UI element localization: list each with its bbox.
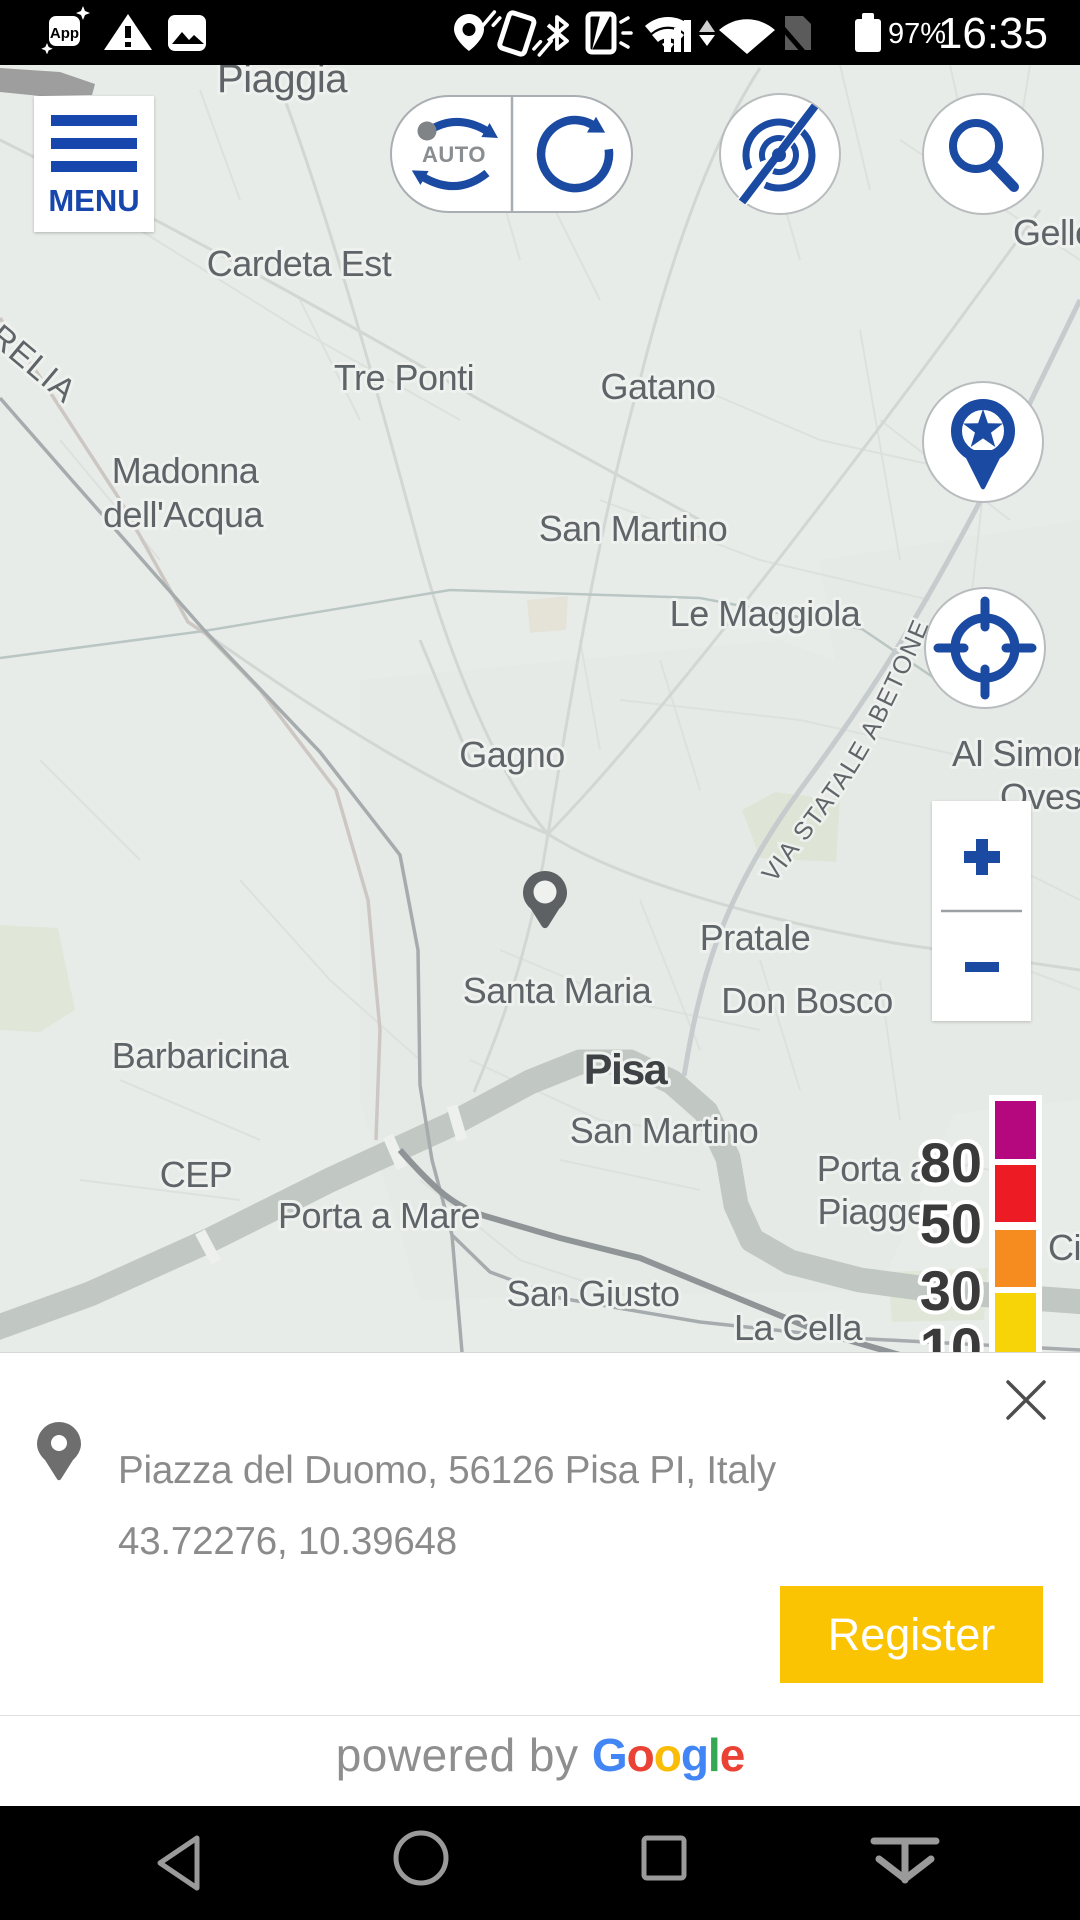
svg-text:80: 80 — [920, 1131, 982, 1194]
svg-text:Don Bosco: Don Bosco — [721, 980, 893, 1021]
svg-text:Tre Ponti: Tre Ponti — [334, 357, 474, 398]
svg-text:CEP: CEP — [160, 1154, 233, 1195]
svg-text:30: 30 — [920, 1259, 982, 1322]
svg-text:AUTO: AUTO — [422, 142, 486, 167]
svg-text:App: App — [50, 25, 79, 42]
svg-text:San Martino: San Martino — [570, 1110, 759, 1151]
svg-text:San Giusto: San Giusto — [506, 1273, 679, 1314]
svg-text:Le Maggiola: Le Maggiola — [670, 593, 862, 634]
svg-text:La Cella: La Cella — [734, 1307, 864, 1348]
svg-text:Pisa: Pisa — [584, 1046, 669, 1094]
svg-text:10: 10 — [920, 1316, 982, 1352]
svg-text:Gagno: Gagno — [459, 734, 565, 775]
svg-text:Porta a Mare: Porta a Mare — [278, 1195, 480, 1236]
svg-text:dell'Acqua: dell'Acqua — [103, 494, 264, 535]
svg-text:Gelle: Gelle — [1013, 212, 1080, 253]
svg-text:Madonna: Madonna — [112, 450, 260, 491]
svg-text:Cardeta Est: Cardeta Est — [207, 243, 392, 284]
svg-text:50: 50 — [920, 1192, 982, 1255]
svg-text:Gatano: Gatano — [600, 366, 715, 407]
svg-text:Santa Maria: Santa Maria — [463, 970, 653, 1011]
svg-text:MENU: MENU — [48, 183, 139, 218]
svg-text:Piaggia: Piaggia — [217, 65, 348, 101]
svg-text:Pratale: Pratale — [700, 917, 811, 958]
svg-text:16:35: 16:35 — [938, 9, 1048, 58]
svg-text:Barbaricina: Barbaricina — [112, 1035, 290, 1076]
svg-text:San Martino: San Martino — [539, 508, 728, 549]
svg-text:Al Simon: Al Simon — [952, 733, 1080, 774]
